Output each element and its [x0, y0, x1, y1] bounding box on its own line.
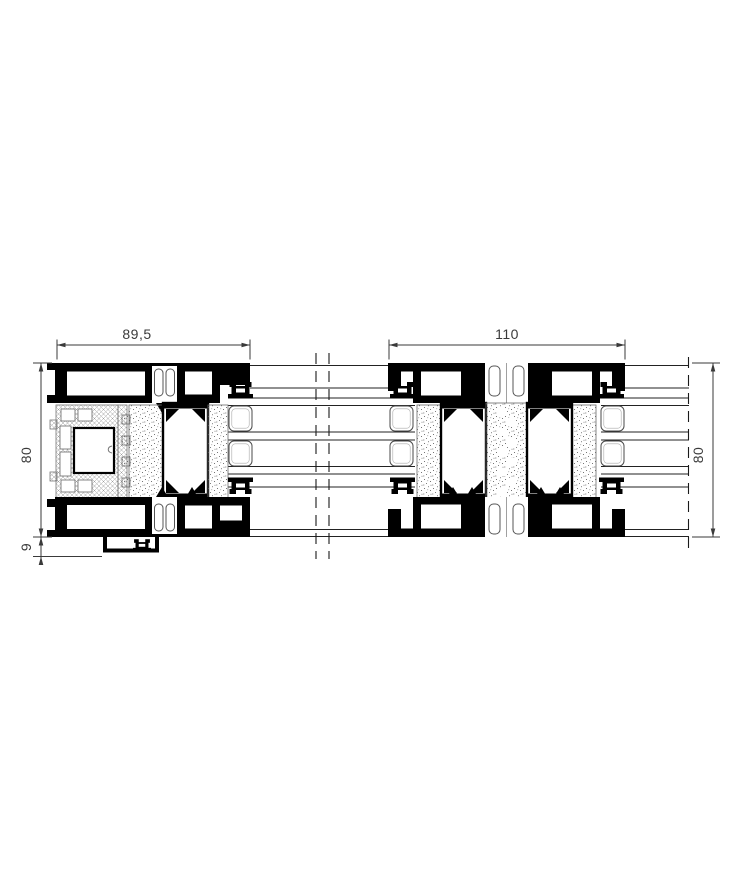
dim-label-left-height: 80: [18, 447, 34, 464]
gasket-clip-icon: [228, 478, 253, 495]
glazing-spacer: [229, 441, 252, 466]
left-profile-assembly: [47, 363, 253, 551]
dim-left-width: 89,5: [57, 326, 250, 360]
glazing-spacer: [390, 441, 413, 466]
profile-cross-section-drawing: 89,5 110 80 9: [0, 0, 737, 882]
right-profile-assembly: [388, 363, 625, 537]
left-bottom-step: [105, 537, 157, 551]
dim-left-height: 80: [18, 363, 52, 537]
glazing-spacer: [601, 406, 624, 431]
dim-label-left-offset: 9: [18, 543, 34, 551]
gasket-clip-icon: [599, 478, 624, 495]
dim-label-right-width: 110: [495, 326, 519, 342]
drawing-canvas: 89,5 110 80 9: [0, 0, 737, 882]
gasket-clip-icon: [133, 539, 151, 551]
thermal-break-foam: [486, 403, 527, 499]
glazing-spacer: [601, 441, 624, 466]
dim-left-offset: 9: [18, 537, 102, 565]
glazing-spacer: [390, 406, 413, 431]
gasket-clip-icon: [390, 382, 415, 399]
dim-right-height: 80: [690, 363, 720, 537]
thermal-break-foam: [129, 405, 163, 499]
gasket-clip-icon: [390, 478, 415, 495]
dim-label-left-width: 89,5: [122, 326, 151, 342]
left-middle-band: [50, 403, 253, 499]
right-middle-band: [390, 403, 624, 499]
gasket-clip-icon: [599, 382, 624, 399]
dim-label-right-height: 80: [690, 447, 706, 464]
dim-right-width: 110: [389, 326, 625, 360]
glazing-spacer: [229, 406, 252, 431]
